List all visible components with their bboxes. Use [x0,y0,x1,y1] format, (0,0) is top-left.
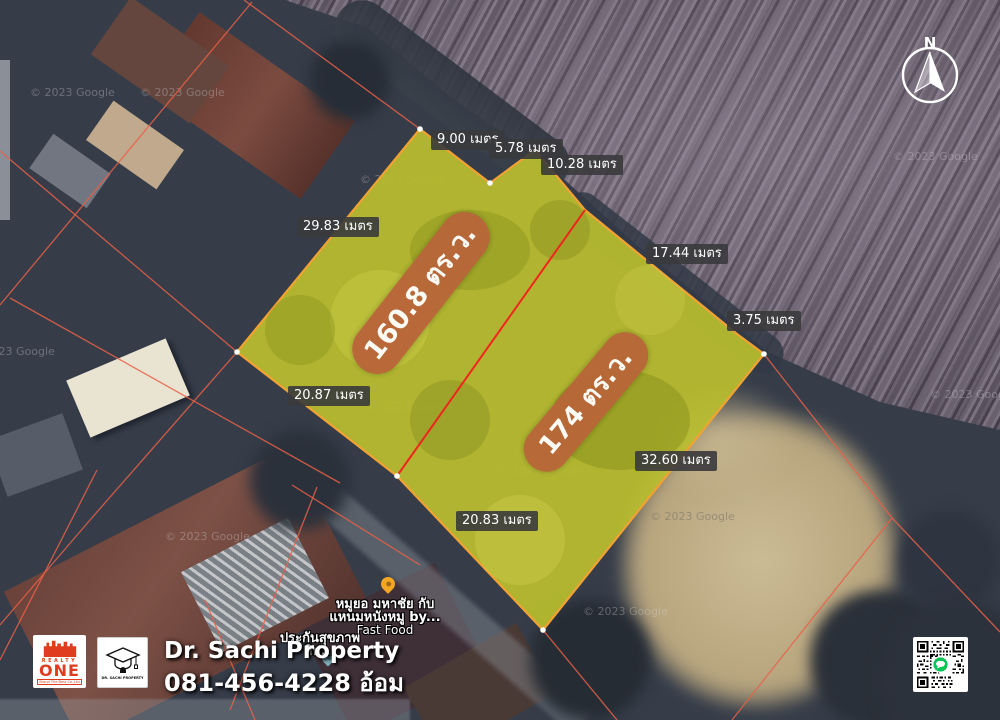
compass: N [895,30,967,108]
compass-north-label: N [924,34,937,52]
dr-sachi-logo-text: DR. SACHI PROPERTY [101,676,143,680]
realty-one-subtext: Brand The Best Co.,Ltd [37,679,81,685]
agency-phone: 081-456-4228 อ้อม [164,663,404,702]
satellite-land-plot-flyer: © 2023 Google © 2023 Google © 2023 Googl… [0,0,1000,720]
measurement-label: 17.44 เมตร [646,244,728,264]
north-arrow-icon [930,52,945,92]
highlighted-plots [234,126,767,633]
line-qr-code [913,637,968,692]
north-arrow-icon [915,52,930,92]
realty-one-buildings-icon [42,639,78,657]
agency-name: Dr. Sachi Property [164,638,399,664]
measurement-label: 10.28 เมตร [541,155,623,175]
measurement-label: 20.83 เมตร [456,511,538,531]
measurement-label: 29.83 เมตร [297,217,379,237]
qr-pattern [917,641,964,688]
plot-boundary-overlay [0,0,1000,720]
realty-one-logo: REALTY ONE Brand The Best Co.,Ltd [33,635,86,688]
graduation-cap-icon [103,645,143,675]
realty-one-name: ONE [39,664,80,678]
measurement-label: 20.87 เมตร [288,386,370,406]
measurement-label: 3.75 เมตร [727,311,801,331]
dr-sachi-logo: DR. SACHI PROPERTY [97,637,148,688]
measurement-label: 32.60 เมตร [635,451,717,471]
